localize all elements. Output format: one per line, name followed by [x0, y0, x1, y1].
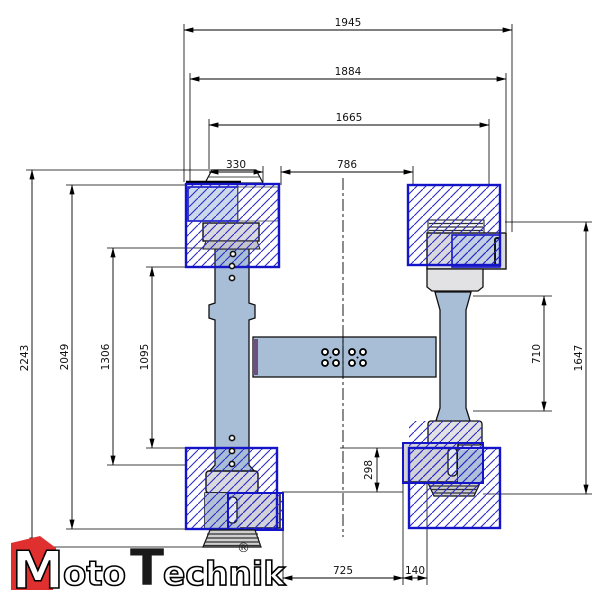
dim-label-overall-length: 2243 — [19, 345, 31, 372]
dim-label-330: 330 — [226, 159, 246, 171]
extension-lines — [26, 24, 592, 585]
dim-label-1095: 1095 — [139, 344, 151, 371]
dim-label-725: 725 — [333, 565, 353, 577]
dimensions-left: 2243 2049 1306 1095 — [19, 170, 152, 547]
dim-label-overall-width: 1945 — [335, 17, 362, 29]
dimensions-middle: 298 — [363, 448, 377, 492]
logo-t: T — [130, 539, 164, 594]
crossbeam-end-cap — [253, 339, 258, 375]
dim-label-786: 786 — [337, 159, 357, 171]
logo-oto: oto — [63, 554, 126, 594]
dim-label-1665: 1665 — [336, 112, 363, 124]
dim-label-710: 710 — [531, 344, 543, 364]
dim-label-1884: 1884 — [335, 66, 362, 78]
dim-label-1647: 1647 — [573, 345, 585, 372]
technical-drawing: 1945 1884 1665 330 786 2243 2049 1306 10… — [0, 0, 608, 594]
registered-trademark-symbol: ® — [237, 541, 250, 556]
dim-label-2049: 2049 — [59, 344, 71, 371]
arm-boss-front-right — [427, 269, 483, 291]
platform-rear-left — [186, 435, 283, 547]
arm-right — [435, 292, 471, 424]
drawing-canvas: 1945 1884 1665 330 786 2243 2049 1306 10… — [0, 0, 608, 594]
dimensions-top: 1945 1884 1665 330 786 — [184, 17, 512, 172]
lift-frame — [186, 170, 506, 547]
dimensions-bottom: 725 140 — [283, 565, 427, 578]
dimensions-right: 710 1647 — [531, 222, 586, 494]
logo-m: M — [12, 541, 64, 594]
dim-label-140: 140 — [405, 565, 425, 577]
dim-label-298: 298 — [363, 460, 375, 480]
crossbeam — [253, 337, 436, 377]
logo-echnik: echnik — [163, 554, 286, 593]
platform-front-right — [408, 185, 506, 291]
platform-front-left — [186, 170, 279, 281]
platform-rear-right — [403, 421, 500, 528]
brand-logo: M oto T echnik ® — [11, 536, 286, 594]
dim-label-1306: 1306 — [100, 343, 112, 370]
